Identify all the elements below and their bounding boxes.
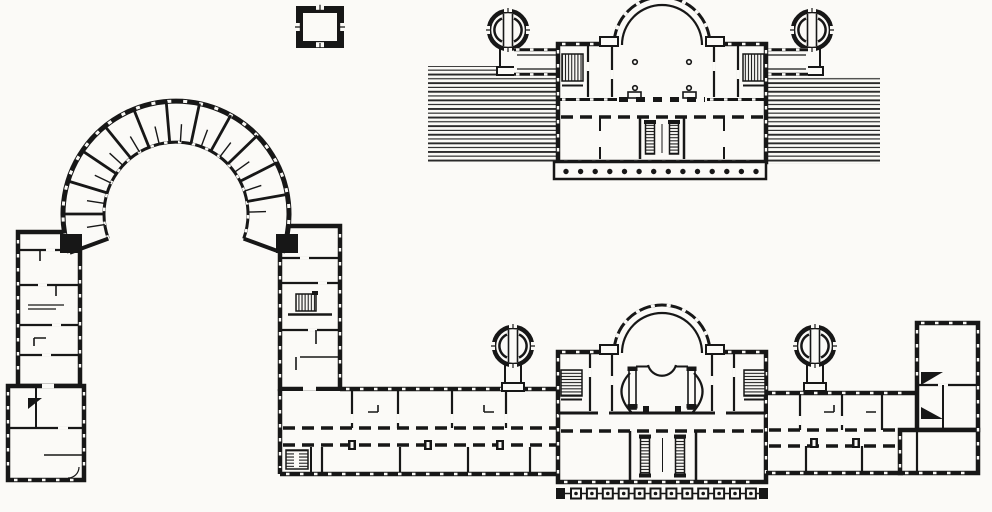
portico-column: [680, 169, 685, 174]
gallery-west: [514, 48, 558, 76]
portico-column: [578, 169, 583, 174]
column: [633, 60, 638, 65]
round-pavilion-southwest: [490, 323, 536, 391]
springing-pier-west: [60, 234, 82, 253]
terrace-ramp-west: [428, 66, 558, 162]
portico-column: [593, 169, 598, 174]
stair-flight: [676, 437, 685, 474]
portico-column: [695, 169, 700, 174]
upper-plan: [428, 0, 880, 179]
portico-stylobate: [554, 162, 766, 179]
stair-flight: [646, 123, 655, 154]
garden-block: [554, 0, 766, 179]
radial-partition-tick: [248, 212, 266, 213]
stair: [296, 294, 316, 311]
springing-pier-east: [276, 234, 298, 253]
colonnade-end-post: [759, 488, 768, 499]
portico-column: [753, 169, 758, 174]
central-block: [556, 305, 768, 499]
link-wing: [280, 389, 558, 474]
scanned-plan-sheet: [0, 0, 992, 512]
column: [687, 60, 692, 65]
portico-column: [651, 169, 656, 174]
west-wing: [18, 232, 80, 386]
portico-column: [666, 169, 671, 174]
portico-column: [607, 169, 612, 174]
stair-flight: [641, 437, 650, 474]
column: [687, 86, 692, 91]
west-end-pavilion: [8, 384, 84, 480]
stair-west: [561, 370, 582, 396]
column: [633, 86, 638, 91]
round-pavilion-southeast: [792, 323, 838, 391]
portico-column: [622, 169, 627, 174]
detached-pavilion-plan: [295, 5, 345, 48]
floor-plan-drawing: [0, 0, 992, 512]
stair-west: [562, 54, 583, 81]
portico-column: [710, 169, 715, 174]
stair-east: [744, 370, 765, 396]
portico-column: [563, 169, 568, 174]
colonnade-end-post: [556, 488, 565, 499]
portico-column: [724, 169, 729, 174]
stair-flight: [670, 123, 679, 154]
stair-east: [743, 54, 764, 81]
portico-column: [636, 169, 641, 174]
gallery-east: [766, 48, 808, 76]
terrace-ramp-east: [768, 76, 880, 164]
triumphal-arch-ring: [60, 101, 298, 253]
east-wing: [766, 393, 917, 473]
portico-column: [739, 169, 744, 174]
